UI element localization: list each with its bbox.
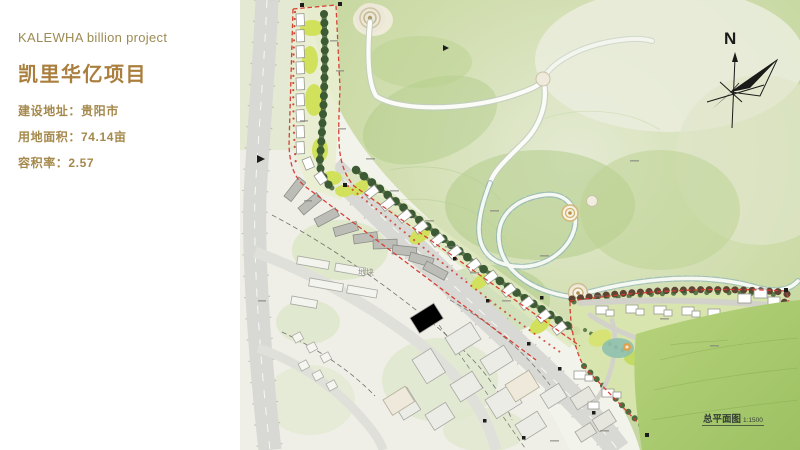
lookout-target-circle [562,205,578,221]
scale-label-title: 总平面图 [703,413,741,425]
project-land-area: 用地面积：74.14亩 [18,128,233,145]
compass-north-label: N [724,29,736,48]
project-title-en: KALEWHA billion project [18,30,233,45]
project-far: 容积率：2.57 [18,154,233,171]
scale-label-value: 1:1500 [743,417,763,424]
project-address: 建设地址：贵阳市 [18,102,233,119]
project-info-panel: KALEWHA billion project 凯里华亿项目 建设地址：贵阳市 … [18,30,233,171]
compass-rose-icon [707,52,777,128]
slide: KALEWHA billion project 凯里华亿项目 建设地址：贵阳市 … [0,0,800,450]
compass: N [706,22,778,132]
project-title-zh: 凯里华亿项目 [18,58,233,87]
plot-label: 地块 [358,267,374,277]
